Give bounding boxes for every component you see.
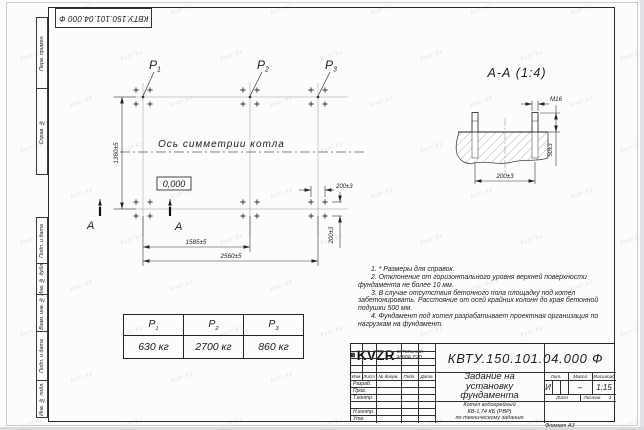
margin-cell-inv-podl: Инв. № подл. <box>36 380 48 418</box>
load-table-header-p2: P2 <box>184 315 244 336</box>
load-table-value-row: 630 кг 2700 кг 860 кг <box>124 336 304 359</box>
margin-strip-top: Перв. примен. Справ. № <box>36 18 48 175</box>
tb-row-nkontr: Н.контр. <box>351 409 376 415</box>
title-block-title: Задание на установку фундамента <box>435 372 544 401</box>
tb-sheet-label: Лист <box>544 394 580 401</box>
rotated-doc-number: КВТУ.150.101.04.000 Ф <box>59 14 149 23</box>
tb-scale-label: Масштаб <box>592 372 616 380</box>
title-block-doc-number: КВТУ.150.101.04.000 Ф <box>435 344 616 372</box>
photo-edge-right <box>640 0 644 430</box>
tb-header-list: Лист <box>362 372 376 380</box>
tb-row-tkontr: Т.контр. <box>351 395 376 401</box>
margin-cell-podp-data-1: Подп. и дата <box>36 217 48 264</box>
tb-row-razrab: Разраб. <box>351 381 376 387</box>
load-value-p1: 630 кг <box>124 336 184 359</box>
tb-row-utv: Утв. <box>351 416 376 422</box>
margin-cell-perv-primen: Перв. примен. <box>36 17 48 89</box>
margin-cell-sprav-no: Справ. № <box>36 88 48 175</box>
note-2: 2. Отклонение от горизонтального уровня … <box>358 274 626 290</box>
tb-sheets-label: Листов <box>580 394 604 401</box>
tb-lit-label: Лит. <box>544 372 568 380</box>
tb-sheets-value: 1 <box>604 394 616 401</box>
note-3: 3. В случае отсутствия бетонного пола пл… <box>358 290 626 314</box>
margin-cell-podp-data-2: Подп. и дата <box>36 331 48 381</box>
note-1: 1. * Размеры для справок. <box>358 266 626 274</box>
note-4: 4. Фундамент под котел разрабатывает про… <box>358 313 626 329</box>
tb-header-podp: Подп. <box>401 372 418 380</box>
load-value-p3: 860 кг <box>244 336 304 359</box>
tb-header-izm: Изм. <box>351 372 362 380</box>
margin-cell-vzam-inv: Взам. инв. № <box>36 294 48 332</box>
technical-notes: 1. * Размеры для справок. 2. Отклонение … <box>358 266 626 329</box>
tb-header-data: Дата <box>418 372 435 380</box>
load-table-header-p1: P1 <box>124 315 184 336</box>
margin-strip-bottom: Подп. и дата Инв. № дубл. Взам. инв. № П… <box>36 218 48 418</box>
load-value-p2: 2700 кг <box>184 336 244 359</box>
tb-row-prov: Пров. <box>351 388 376 394</box>
tb-scale-value: 1:15 <box>592 380 616 394</box>
load-table-header-row: P1 P2 P3 <box>124 315 304 336</box>
tb-lit-value: И <box>544 380 552 394</box>
margin-cell-inv-dubl: Инв. № дубл. <box>36 263 48 295</box>
rotated-doc-number-stamp: КВТУ.150.101.04.000 Ф <box>55 8 152 28</box>
title-block: КВТУ.150.101.04.000 Ф Задание на установ… <box>350 343 615 422</box>
tb-mass-value: – <box>568 380 592 394</box>
tb-mass-label: Масса <box>568 372 592 380</box>
load-table: P1 P2 P3 630 кг 2700 кг 860 кг <box>123 314 304 359</box>
load-table-header-p3: P3 <box>244 315 304 336</box>
tb-header-dokum: № докум. <box>376 372 401 380</box>
drawing-sheet: kvzr.kzkvzr.kzkvzr.kzkvzr.kzkvzr.kzkvzr.… <box>0 0 644 430</box>
title-block-product: Котел водогрейный КВ-1,74 КБ (РВР) по те… <box>435 401 544 423</box>
